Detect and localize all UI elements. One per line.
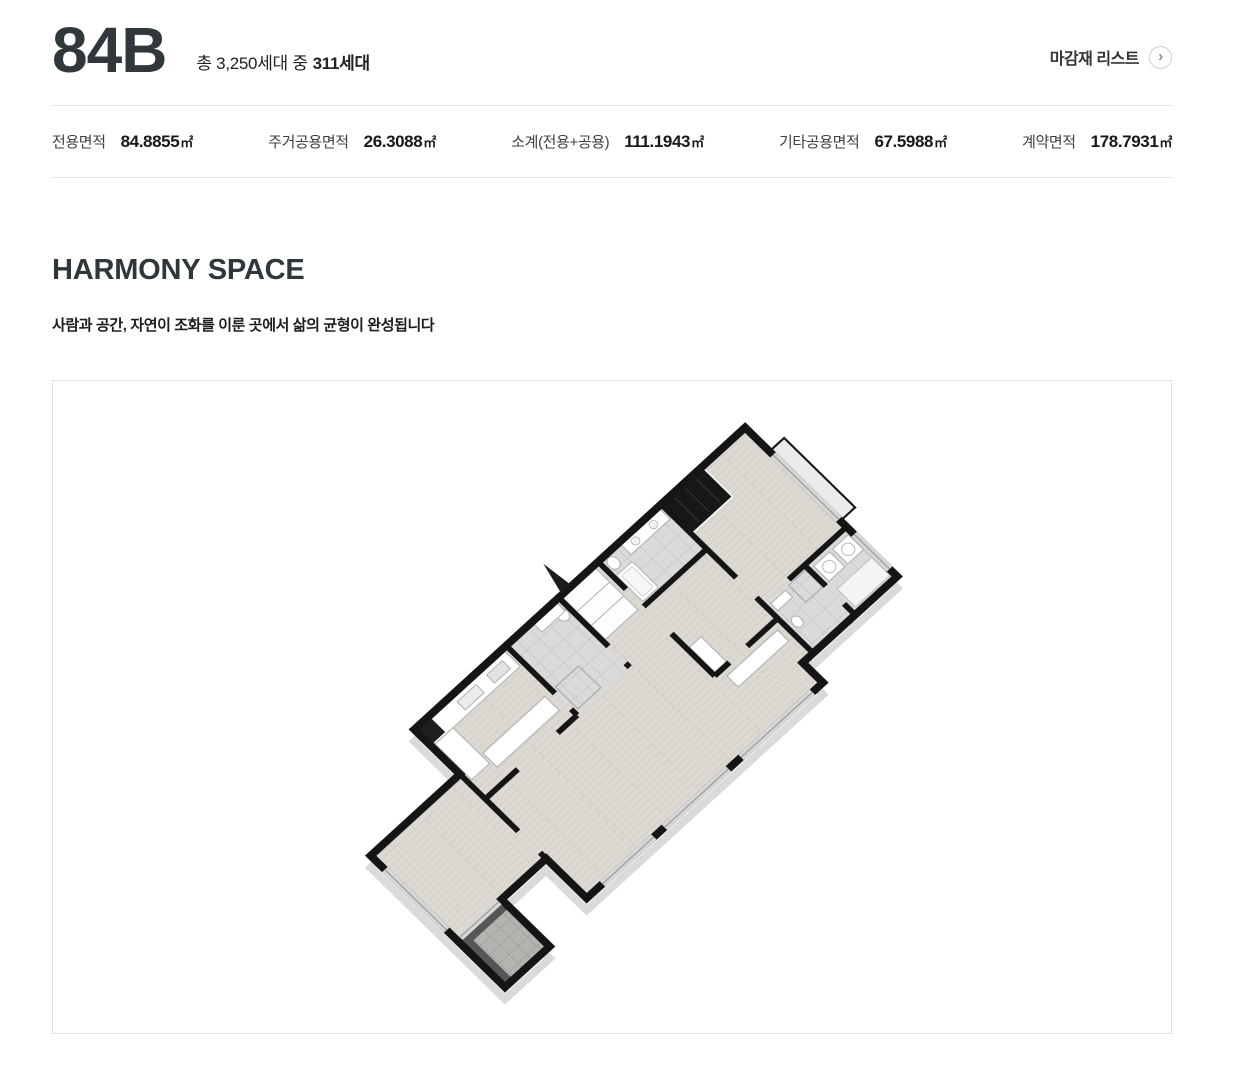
spec-label: 전용면적	[52, 131, 106, 152]
unit-title-group: 84B 총 3,250세대 중311세대	[52, 20, 370, 81]
unit-header: 84B 총 3,250세대 중311세대 마감재 리스트 ›	[52, 0, 1172, 106]
spec-unit: ㎡	[934, 132, 947, 151]
chevron-glyph: ›	[1158, 49, 1163, 64]
spec-unit: ㎡	[1159, 132, 1172, 151]
page: 84B 총 3,250세대 중311세대 마감재 리스트 › 전용면적 84.8…	[0, 0, 1236, 1034]
spec-label: 계약면적	[1022, 131, 1076, 152]
spec-label: 주거공용면적	[268, 131, 348, 152]
finish-list-link[interactable]: 마감재 리스트 ›	[1050, 45, 1172, 81]
section-title: HARMONY SPACE	[52, 254, 1172, 287]
spec-item-contract: 계약면적 178.7931 ㎡	[1022, 131, 1172, 152]
finish-list-label: 마감재 리스트	[1050, 45, 1139, 69]
spec-item-other-common: 기타공용면적 67.5988 ㎡	[779, 131, 947, 152]
floorplan-panel	[52, 380, 1172, 1034]
household-strong: 311세대	[313, 54, 370, 73]
spec-item-subtotal: 소계(전용+공용) 111.1943 ㎡	[511, 131, 703, 152]
unit-code-title: 84B	[52, 20, 166, 81]
spec-unit: ㎡	[691, 132, 704, 151]
spec-value: 26.3088	[364, 132, 423, 152]
spec-label: 기타공용면적	[779, 131, 859, 152]
household-total: 총 3,250세대 중	[196, 54, 307, 73]
spec-unit: ㎡	[180, 132, 193, 151]
spec-item-residential-common: 주거공용면적 26.3088 ㎡	[268, 131, 436, 152]
area-spec-row: 전용면적 84.8855 ㎡ 주거공용면적 26.3088 ㎡ 소계(전용+공용…	[52, 106, 1172, 178]
spec-label: 소계(전용+공용)	[511, 131, 609, 152]
chevron-right-icon[interactable]: ›	[1149, 46, 1172, 69]
spec-value: 84.8855	[121, 132, 180, 152]
spec-value: 178.7931	[1091, 132, 1159, 152]
spec-unit: ㎡	[423, 132, 436, 151]
floorplan-3d-image	[53, 381, 1171, 1033]
household-count: 총 3,250세대 중311세대	[196, 49, 369, 81]
spec-value: 67.5988	[874, 132, 933, 152]
section-subtitle: 사람과 공간, 자연이 조화를 이룬 곳에서 삶의 균형이 완성됩니다	[52, 314, 1172, 335]
spec-value: 111.1943	[624, 132, 690, 152]
entrance-door	[537, 561, 571, 593]
spec-item-exclusive: 전용면적 84.8855 ㎡	[52, 131, 193, 152]
